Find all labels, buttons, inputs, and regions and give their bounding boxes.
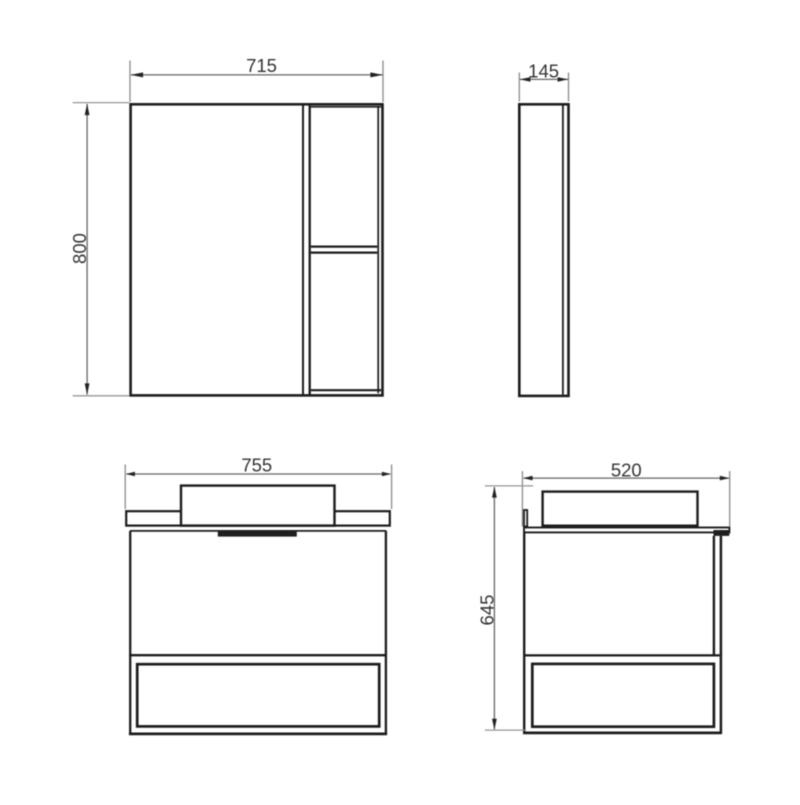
svg-text:715: 715 bbox=[246, 55, 277, 76]
svg-text:800: 800 bbox=[69, 233, 90, 264]
svg-text:645: 645 bbox=[477, 595, 498, 626]
svg-text:520: 520 bbox=[611, 460, 642, 481]
svg-text:145: 145 bbox=[528, 60, 559, 81]
svg-text:755: 755 bbox=[241, 454, 272, 475]
